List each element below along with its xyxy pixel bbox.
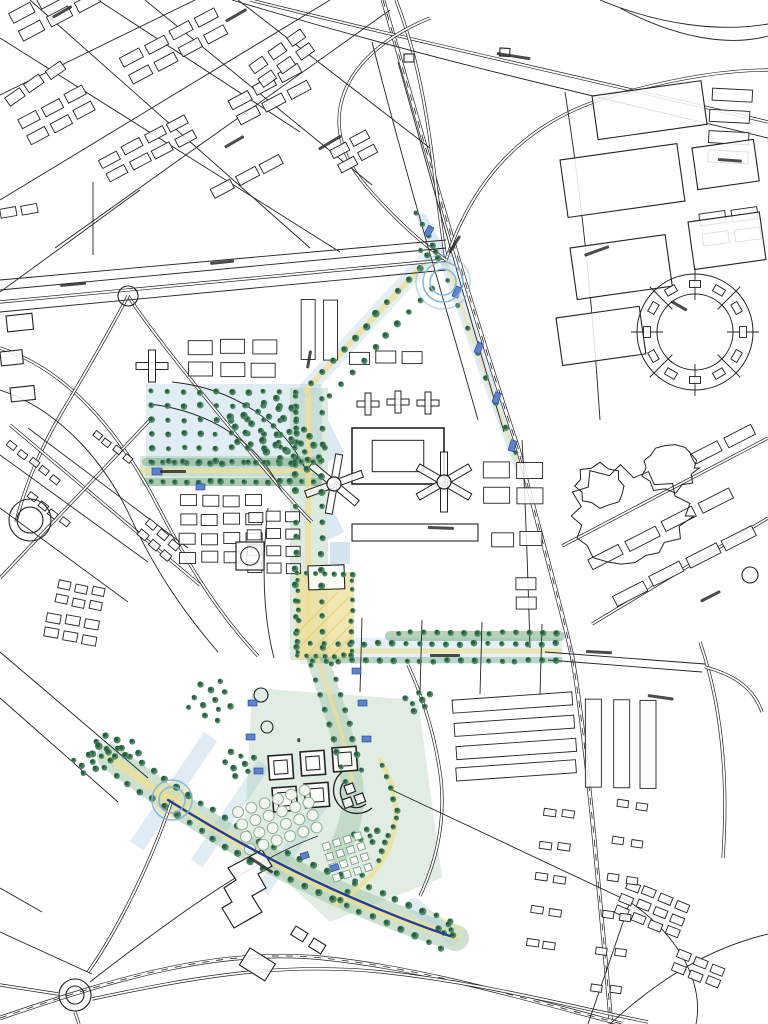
masterplan-svg: [0, 0, 768, 1024]
masterplan-scan: [0, 0, 768, 1024]
